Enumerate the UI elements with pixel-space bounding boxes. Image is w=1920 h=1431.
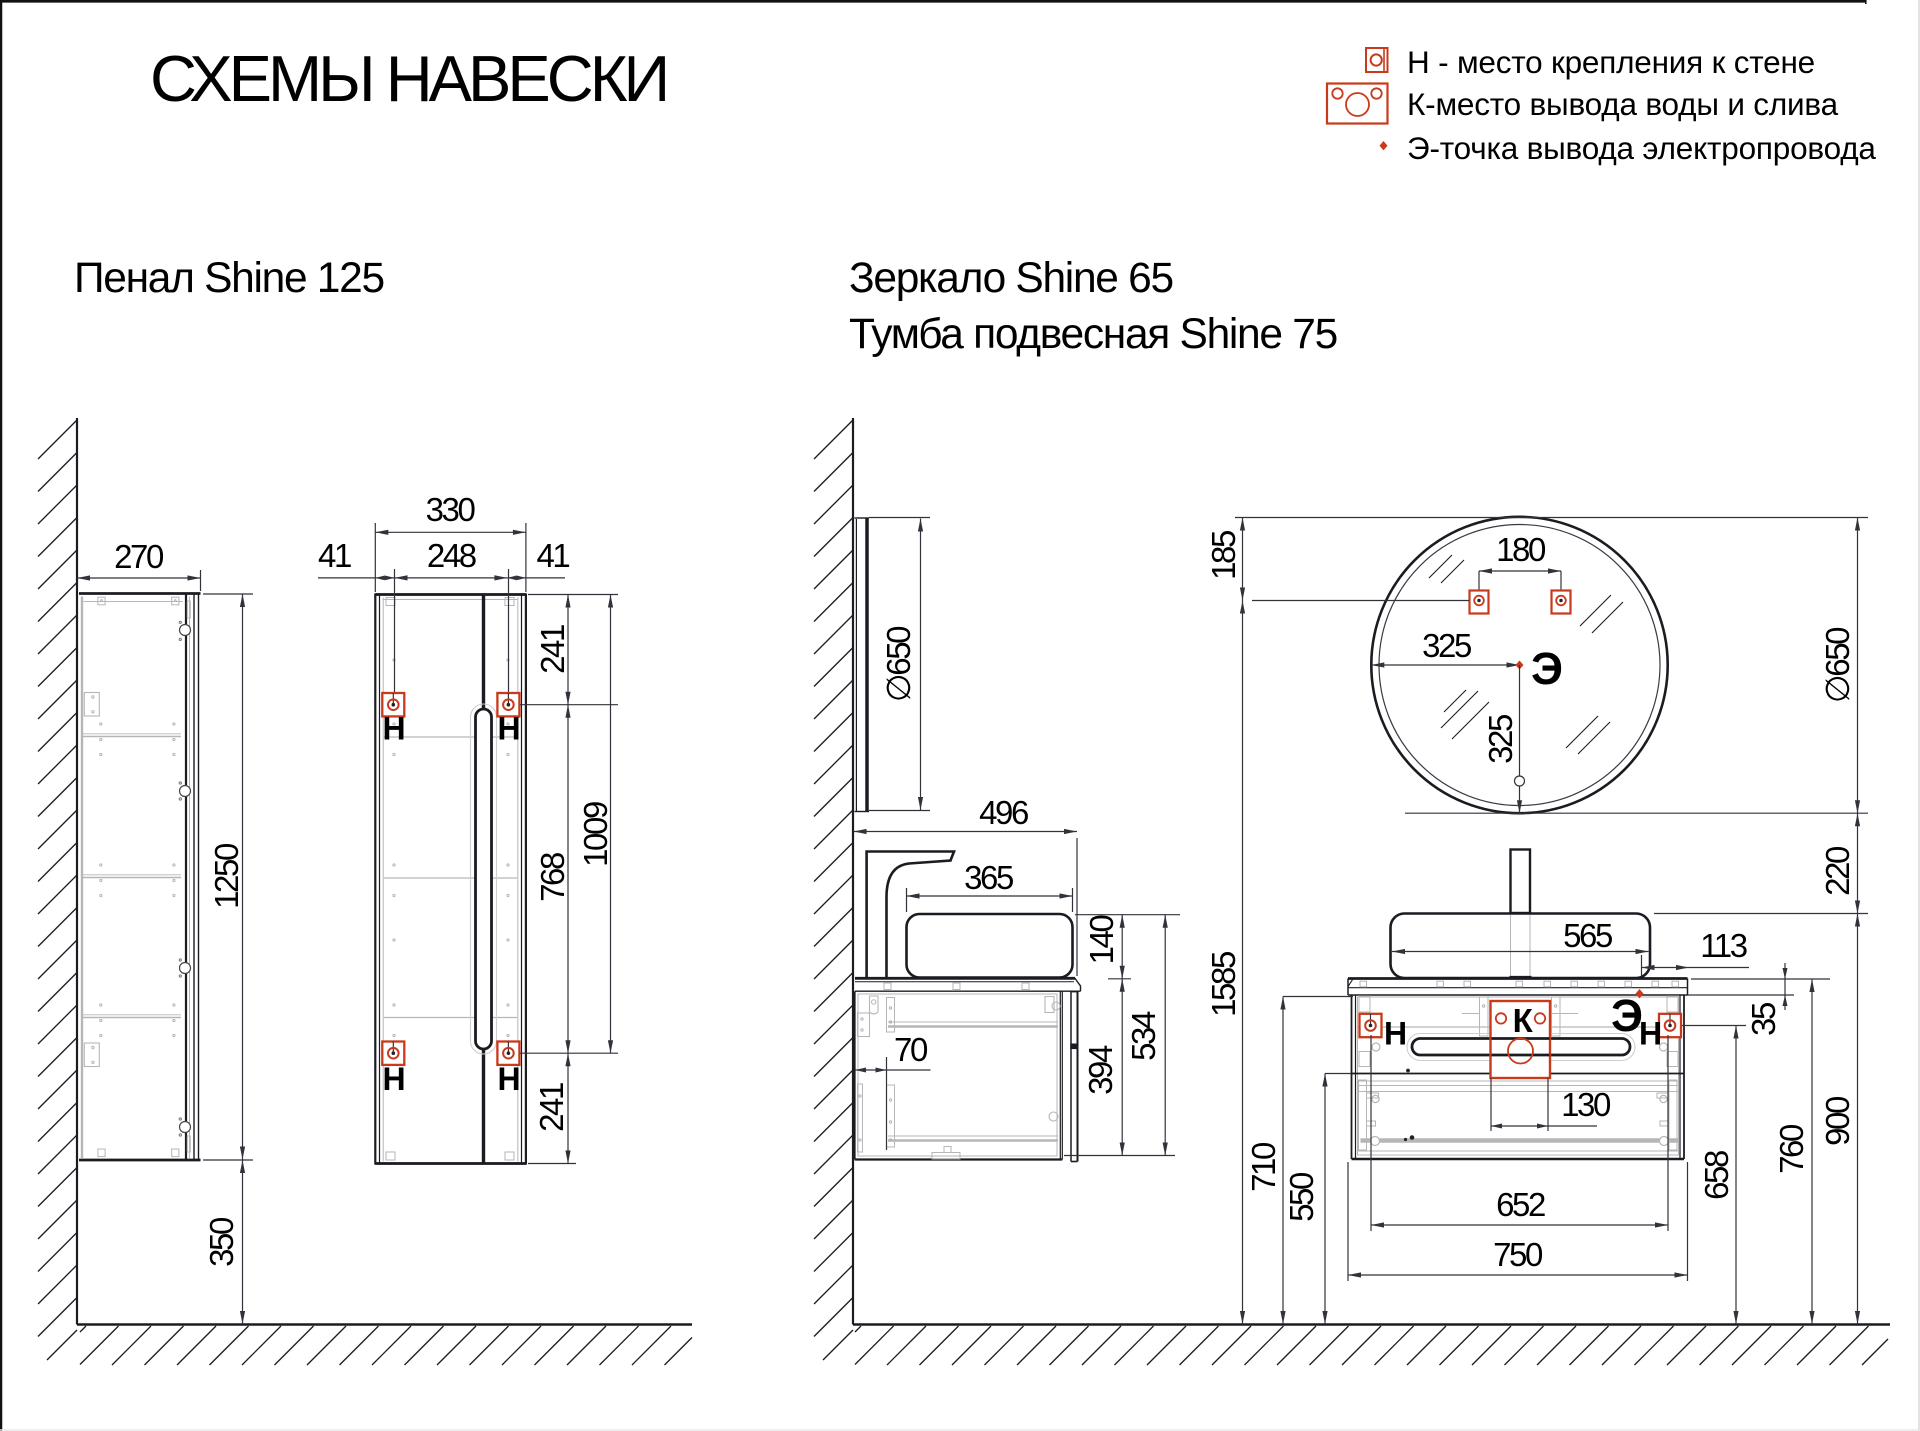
svg-text:140: 140 bbox=[1083, 915, 1120, 965]
svg-text:496: 496 bbox=[979, 794, 1028, 831]
svg-text:∅650: ∅650 bbox=[1819, 627, 1856, 703]
svg-text:768: 768 bbox=[534, 853, 571, 902]
svg-text:41: 41 bbox=[318, 537, 351, 574]
svg-text:Н - место крепления к стене: Н - место крепления к стене bbox=[1407, 44, 1815, 80]
svg-text:185: 185 bbox=[1205, 531, 1242, 580]
svg-text:Н: Н bbox=[383, 711, 404, 747]
svg-text:Н: Н bbox=[383, 1061, 404, 1097]
svg-text:325: 325 bbox=[1482, 715, 1519, 764]
svg-text:330: 330 bbox=[426, 491, 476, 528]
svg-text:Э: Э bbox=[1531, 643, 1563, 694]
svg-text:760: 760 bbox=[1773, 1124, 1810, 1174]
svg-text:41: 41 bbox=[536, 537, 569, 574]
svg-text:Зеркало Shine 65: Зеркало Shine 65 bbox=[849, 255, 1173, 302]
svg-text:270: 270 bbox=[114, 538, 164, 575]
svg-text:180: 180 bbox=[1496, 531, 1546, 568]
svg-text:113: 113 bbox=[1700, 927, 1746, 964]
svg-text:Н: Н bbox=[1384, 1016, 1405, 1052]
svg-text:241: 241 bbox=[534, 625, 571, 674]
svg-text:Н: Н bbox=[498, 711, 519, 747]
svg-text:Пенал Shine 125: Пенал Shine 125 bbox=[74, 255, 384, 302]
svg-text:Н: Н bbox=[498, 1061, 519, 1097]
svg-text:394: 394 bbox=[1082, 1045, 1119, 1095]
svg-text:1250: 1250 bbox=[208, 843, 245, 909]
svg-text:70: 70 bbox=[894, 1031, 928, 1068]
svg-text:220: 220 bbox=[1819, 846, 1856, 896]
svg-text:550: 550 bbox=[1283, 1172, 1320, 1222]
svg-text:325: 325 bbox=[1422, 627, 1471, 664]
svg-text:СХЕМЫ НАВЕСКИ: СХЕМЫ НАВЕСКИ bbox=[150, 42, 666, 115]
svg-text:1009: 1009 bbox=[577, 802, 614, 867]
svg-text:652: 652 bbox=[1496, 1186, 1545, 1223]
svg-text:К-место вывода воды и слива: К-место вывода воды и слива bbox=[1407, 86, 1839, 122]
svg-text:565: 565 bbox=[1563, 917, 1612, 954]
svg-text:248: 248 bbox=[427, 537, 476, 574]
svg-text:Э-точка вывода электропровода: Э-точка вывода электропровода bbox=[1407, 130, 1876, 166]
svg-text:130: 130 bbox=[1561, 1086, 1611, 1123]
svg-text:750: 750 bbox=[1493, 1236, 1543, 1273]
svg-text:658: 658 bbox=[1698, 1151, 1735, 1200]
svg-text:Э: Э bbox=[1611, 990, 1643, 1041]
svg-text:350: 350 bbox=[203, 1217, 240, 1267]
svg-text:∅650: ∅650 bbox=[880, 626, 917, 702]
svg-text:1585: 1585 bbox=[1205, 952, 1242, 1017]
svg-text:241: 241 bbox=[533, 1083, 570, 1132]
svg-text:365: 365 bbox=[964, 859, 1013, 896]
svg-text:534: 534 bbox=[1125, 1011, 1162, 1061]
svg-text:710: 710 bbox=[1245, 1142, 1282, 1192]
svg-text:900: 900 bbox=[1819, 1096, 1856, 1146]
svg-text:35: 35 bbox=[1745, 1003, 1782, 1036]
svg-text:Тумба подвесная Shine 75: Тумба подвесная Shine 75 bbox=[849, 311, 1337, 358]
